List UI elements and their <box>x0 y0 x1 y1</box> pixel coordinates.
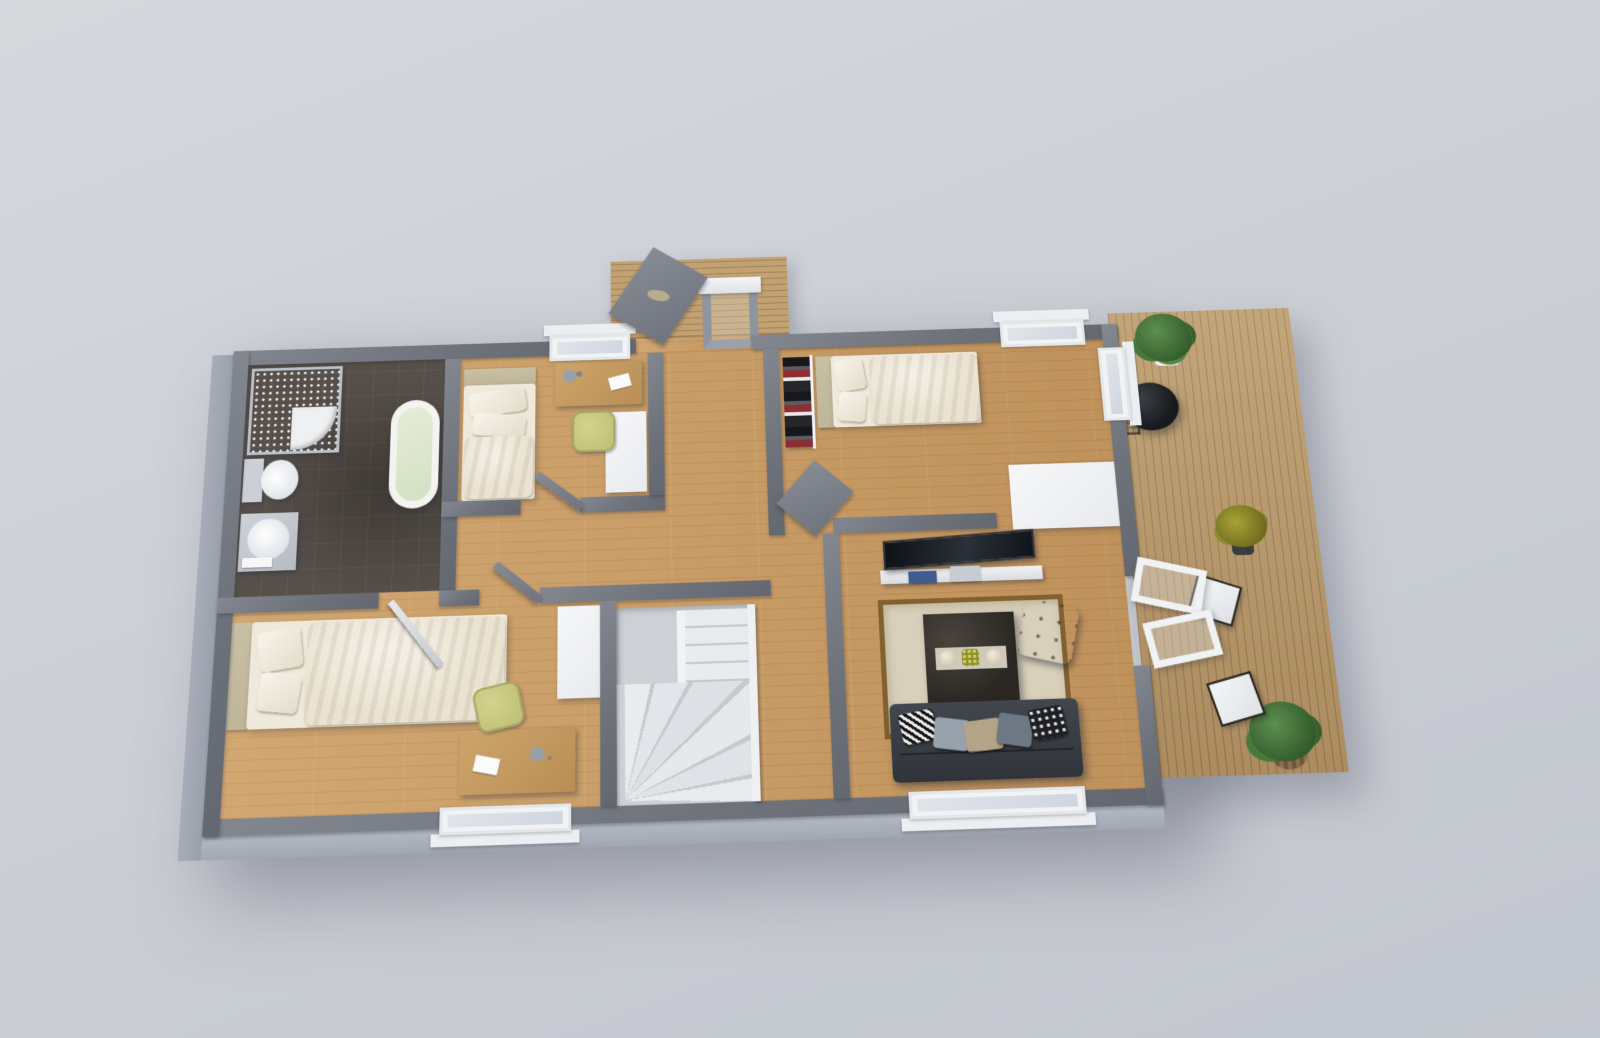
desk-lamp <box>563 370 577 383</box>
bed-duvet <box>869 353 981 424</box>
wall-bedroom3-top-a <box>439 589 480 606</box>
window-bedroom3 <box>439 803 571 835</box>
bed-pillow <box>838 391 867 422</box>
sofa-cushion-grid <box>1027 704 1068 740</box>
dresser <box>1008 462 1120 530</box>
wall-bedroom1-bottom-b <box>580 495 665 513</box>
fruit-bowl <box>961 649 979 667</box>
deck-glass-door-panel[interactable] <box>1142 609 1223 668</box>
desk <box>459 727 576 795</box>
potted-plant <box>1133 313 1196 363</box>
media-box <box>908 571 937 584</box>
bed-pillow <box>255 672 302 714</box>
desk-lamp <box>530 747 545 762</box>
floor-plan-scene <box>0 0 1600 1038</box>
window-pane <box>1106 354 1123 414</box>
wall-stair-left <box>600 601 617 807</box>
bathtub <box>388 399 440 509</box>
door-handle-hole <box>646 288 671 303</box>
window-bedroom2 <box>999 320 1085 348</box>
desk-chair[interactable] <box>471 680 526 735</box>
towel <box>242 557 273 568</box>
window-pane <box>1007 326 1077 341</box>
bed-pillow <box>833 357 868 392</box>
window-pane <box>557 340 622 355</box>
clothes-rack <box>782 357 813 448</box>
wall-bedroom1-bottom-a <box>441 499 521 517</box>
stair-winders <box>616 680 752 806</box>
olive-plant <box>1213 504 1269 548</box>
living-room <box>838 524 1145 798</box>
desk-chair[interactable] <box>572 410 615 452</box>
tv-screen[interactable] <box>883 529 1036 571</box>
bathtub-basin <box>395 407 433 502</box>
staircase[interactable] <box>616 604 752 806</box>
paper-sheet <box>472 755 500 776</box>
porch-frame-top <box>698 277 761 295</box>
deck-glass-door-panel[interactable] <box>1131 557 1207 615</box>
bed-pillow <box>257 626 303 673</box>
bed-pillow <box>472 413 527 438</box>
floor-plan <box>156 290 1421 897</box>
sofa[interactable] <box>889 698 1084 783</box>
paper-sheet <box>608 373 632 391</box>
ottoman[interactable] <box>1016 598 1080 666</box>
media-shelf-item <box>950 565 981 582</box>
toilet[interactable] <box>260 459 300 500</box>
wall-bedroom1-right <box>648 352 665 495</box>
window-pane <box>448 811 563 828</box>
bedroom-3 <box>220 601 600 819</box>
bathroom <box>234 359 445 597</box>
desk <box>555 360 642 406</box>
bedroom-1 <box>457 353 649 501</box>
window-bedroom1 <box>549 334 630 362</box>
wardrobe <box>557 605 600 699</box>
window-pane <box>917 794 1078 812</box>
coffee-table <box>923 612 1020 703</box>
bed-duvet <box>463 435 533 499</box>
